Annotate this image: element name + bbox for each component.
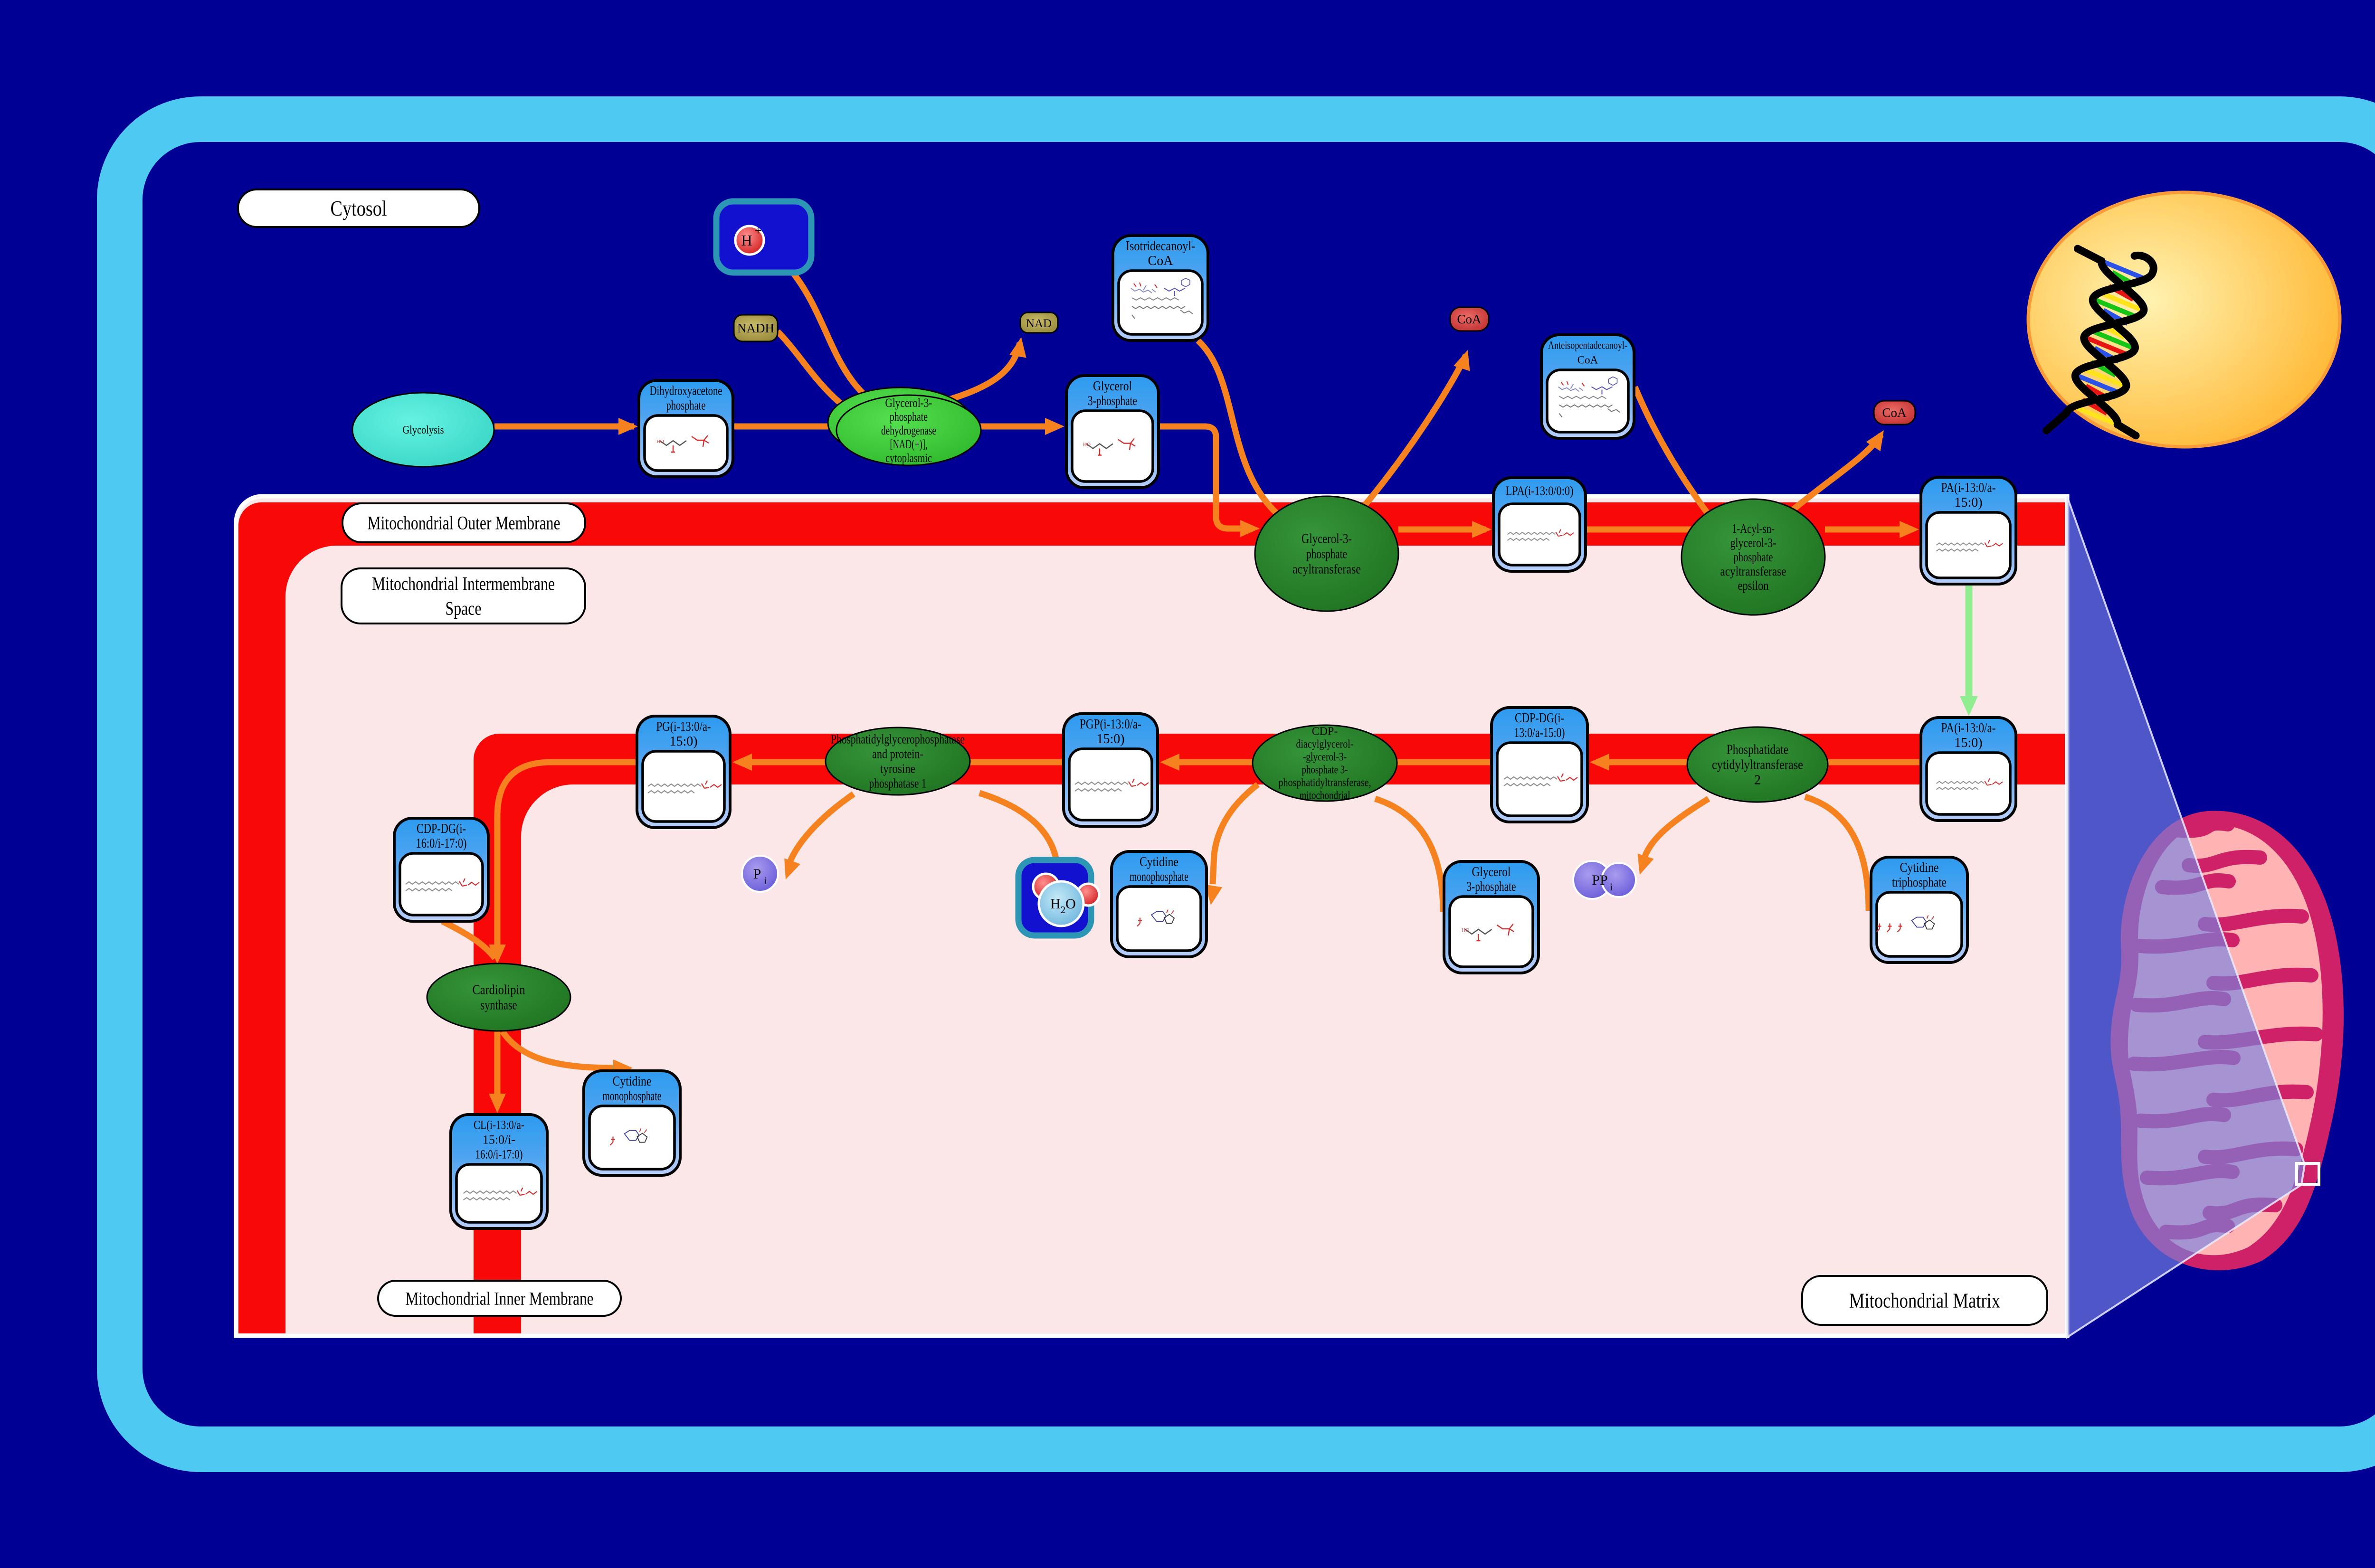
svg-text:LPA(i-13:0/0:0): LPA(i-13:0/0:0) bbox=[1506, 484, 1574, 498]
svg-text:13:0/a-15:0): 13:0/a-15:0) bbox=[1514, 726, 1565, 740]
svg-text:Dihydroxyacetone: Dihydroxyacetone bbox=[650, 384, 722, 398]
svg-text:acyltransferase: acyltransferase bbox=[1720, 564, 1786, 578]
svg-text:Cytidine: Cytidine bbox=[1900, 860, 1939, 875]
svg-text:H: H bbox=[1050, 896, 1061, 912]
svg-text:Cardiolipin: Cardiolipin bbox=[473, 983, 525, 998]
svg-text:cytidylyltransferase: cytidylyltransferase bbox=[1712, 758, 1803, 773]
svg-text:CDP-: CDP- bbox=[1312, 726, 1338, 738]
svg-text:dehydrogenase: dehydrogenase bbox=[881, 424, 936, 437]
svg-text:16:0/i-17:0): 16:0/i-17:0) bbox=[416, 836, 467, 851]
svg-text:triphosphate: triphosphate bbox=[1892, 875, 1947, 890]
svg-text:i: i bbox=[764, 875, 767, 887]
svg-text:16:0/i-17:0): 16:0/i-17:0) bbox=[475, 1147, 523, 1161]
svg-text:synthase: synthase bbox=[481, 998, 517, 1013]
svg-text:phosphate: phosphate bbox=[890, 410, 928, 424]
svg-text:PA(i-13:0/a-: PA(i-13:0/a- bbox=[1941, 721, 1996, 736]
svg-text:diacylglycerol-: diacylglycerol- bbox=[1296, 738, 1354, 751]
svg-text:CoA: CoA bbox=[1148, 254, 1174, 268]
svg-text:Mitochondrial Intermembrane: Mitochondrial Intermembrane bbox=[372, 573, 555, 595]
svg-text:2: 2 bbox=[1061, 904, 1066, 916]
svg-text:CoA: CoA bbox=[1577, 354, 1598, 366]
svg-text:CoA: CoA bbox=[1882, 406, 1907, 420]
svg-text:Cytidine: Cytidine bbox=[613, 1074, 652, 1089]
svg-text:NAD: NAD bbox=[1026, 317, 1052, 330]
svg-text:15:0): 15:0) bbox=[1096, 732, 1124, 746]
svg-text:tyrosine: tyrosine bbox=[880, 762, 915, 776]
svg-text:NADH: NADH bbox=[737, 321, 774, 335]
svg-text:Space: Space bbox=[446, 598, 482, 619]
svg-text:Phosphatidate: Phosphatidate bbox=[1727, 743, 1788, 757]
svg-text:Cytosol: Cytosol bbox=[331, 196, 387, 220]
svg-text:CoA: CoA bbox=[1457, 312, 1482, 326]
svg-text:[NAD(+)],: [NAD(+)], bbox=[890, 437, 928, 451]
svg-text:Glycolysis: Glycolysis bbox=[403, 424, 444, 436]
svg-text:Glycerol: Glycerol bbox=[1093, 379, 1132, 394]
svg-text:15:0): 15:0) bbox=[1954, 736, 1982, 750]
svg-text:HO: HO bbox=[656, 439, 664, 444]
svg-text:acyltransferase: acyltransferase bbox=[1292, 562, 1361, 577]
svg-text:CDP-DG(i-: CDP-DG(i- bbox=[417, 822, 466, 836]
svg-text:P: P bbox=[753, 866, 761, 882]
svg-text:glycerol-3-: glycerol-3- bbox=[1730, 536, 1776, 550]
svg-text:2: 2 bbox=[1754, 773, 1761, 788]
svg-text:Mitochondrial Inner Membrane: Mitochondrial Inner Membrane bbox=[406, 1288, 594, 1309]
svg-text:H: H bbox=[741, 232, 752, 249]
svg-text:+: + bbox=[755, 224, 762, 237]
svg-text:HO: HO bbox=[1083, 442, 1091, 448]
svg-text:15:0/i-: 15:0/i- bbox=[483, 1133, 515, 1146]
svg-text:-glycerol-3-: -glycerol-3- bbox=[1303, 751, 1347, 764]
svg-text:phosphate: phosphate bbox=[1734, 550, 1773, 564]
svg-text:15:0): 15:0) bbox=[669, 734, 697, 749]
svg-text:Mitochondrial Outer Membrane: Mitochondrial Outer Membrane bbox=[368, 512, 560, 534]
svg-text:phosphate: phosphate bbox=[666, 398, 706, 413]
svg-text:HO: HO bbox=[1462, 927, 1470, 933]
svg-text:Cytidine: Cytidine bbox=[1140, 855, 1178, 869]
svg-text:1-Acyl-sn-: 1-Acyl-sn- bbox=[1732, 521, 1775, 536]
svg-text:3-phosphate: 3-phosphate bbox=[1088, 394, 1137, 408]
svg-text:mitochondrial: mitochondrial bbox=[1300, 790, 1350, 802]
svg-text:Glycerol-3-: Glycerol-3- bbox=[885, 396, 932, 410]
svg-text:PG(i-13:0/a-: PG(i-13:0/a- bbox=[656, 719, 711, 734]
svg-text:and protein-: and protein- bbox=[872, 747, 923, 761]
svg-text:Phosphatidylglycerophosphatase: Phosphatidylglycerophosphatase bbox=[831, 732, 965, 746]
svg-text:phosphate 3-: phosphate 3- bbox=[1302, 764, 1348, 776]
svg-text:PP: PP bbox=[1592, 872, 1607, 888]
svg-text:monophosphate: monophosphate bbox=[1130, 869, 1188, 884]
svg-text:O: O bbox=[1065, 896, 1076, 912]
svg-text:i: i bbox=[1610, 881, 1613, 893]
svg-text:15:0): 15:0) bbox=[1954, 495, 1982, 510]
svg-text:Glycerol: Glycerol bbox=[1472, 865, 1511, 879]
svg-text:CL(i-13:0/a-: CL(i-13:0/a- bbox=[474, 1118, 524, 1132]
svg-text:Anteisopentadecanoyl-: Anteisopentadecanoyl- bbox=[1548, 339, 1627, 351]
svg-text:phosphatase 1: phosphatase 1 bbox=[869, 776, 927, 791]
svg-text:Glycerol-3-: Glycerol-3- bbox=[1301, 532, 1352, 547]
svg-text:cytoplasmic: cytoplasmic bbox=[885, 451, 932, 465]
svg-text:CDP-DG(i-: CDP-DG(i- bbox=[1515, 711, 1564, 726]
svg-text:monophosphate: monophosphate bbox=[603, 1089, 662, 1104]
svg-text:PGP(i-13:0/a-: PGP(i-13:0/a- bbox=[1080, 717, 1141, 732]
svg-text:phosphate: phosphate bbox=[1306, 547, 1347, 562]
svg-text:epsilon: epsilon bbox=[1738, 578, 1769, 593]
svg-text:Isotridecanoyl-: Isotridecanoyl- bbox=[1126, 239, 1195, 254]
svg-text:phosphatidyltransferase,: phosphatidyltransferase, bbox=[1279, 777, 1371, 789]
svg-text:Mitochondrial Matrix: Mitochondrial Matrix bbox=[1849, 1289, 2000, 1312]
svg-text:3-phosphate: 3-phosphate bbox=[1467, 879, 1516, 894]
svg-text:PA(i-13:0/a-: PA(i-13:0/a- bbox=[1941, 481, 1996, 495]
